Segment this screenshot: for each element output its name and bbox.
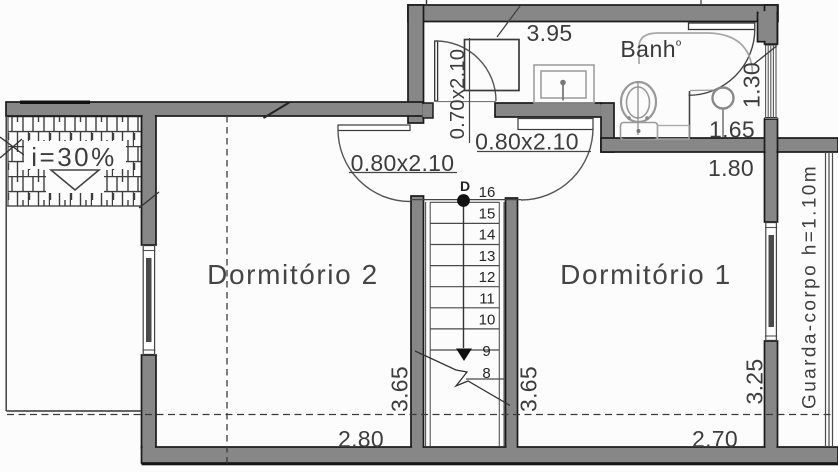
svg-text:3.65: 3.65 xyxy=(516,366,542,412)
svg-text:16: 16 xyxy=(479,184,496,201)
svg-text:0.80x2.10: 0.80x2.10 xyxy=(475,129,579,155)
svg-text:10: 10 xyxy=(479,312,496,329)
svg-text:3.95: 3.95 xyxy=(527,20,573,46)
svg-text:11: 11 xyxy=(479,290,495,307)
svg-text:9: 9 xyxy=(482,343,490,360)
svg-text:14: 14 xyxy=(479,227,496,244)
svg-text:2.70: 2.70 xyxy=(692,426,738,452)
svg-text:i=30%: i=30% xyxy=(31,142,117,172)
svg-text:12: 12 xyxy=(479,269,496,286)
svg-text:1.30: 1.30 xyxy=(739,62,765,108)
svg-text:Dormitório 2: Dormitório 2 xyxy=(207,259,379,290)
svg-text:Guarda-corpo h=1.10m: Guarda-corpo h=1.10m xyxy=(800,164,821,409)
svg-text:2.80: 2.80 xyxy=(338,426,384,452)
svg-text:8: 8 xyxy=(482,365,490,382)
svg-text:13: 13 xyxy=(479,248,496,265)
svg-text:Dormitório 1: Dormitório 1 xyxy=(560,259,732,290)
svg-text:D: D xyxy=(460,178,470,194)
svg-text:0.70x2.10: 0.70x2.10 xyxy=(447,49,469,140)
svg-text:1.80: 1.80 xyxy=(708,155,754,181)
svg-text:3.25: 3.25 xyxy=(742,359,768,405)
svg-text:3.65: 3.65 xyxy=(387,366,413,412)
svg-text:Banhº: Banhº xyxy=(620,36,681,62)
svg-text:15: 15 xyxy=(479,206,496,223)
svg-text:1.65: 1.65 xyxy=(709,117,755,143)
